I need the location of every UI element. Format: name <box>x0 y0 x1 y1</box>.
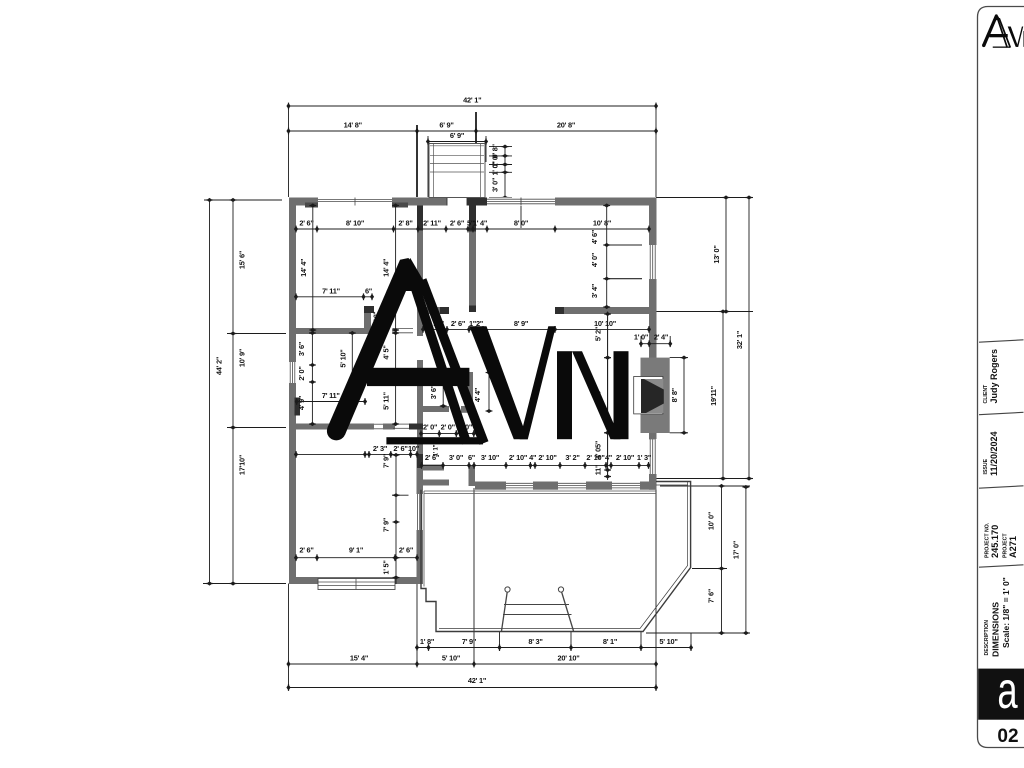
svg-text:20' 8": 20' 8" <box>557 121 576 130</box>
svg-text:6": 6" <box>365 286 373 295</box>
svg-text:9' 1": 9' 1" <box>349 546 364 555</box>
svg-text:Judy Rogers: Judy Rogers <box>989 349 999 404</box>
svg-text:1' 3": 1' 3" <box>637 453 652 462</box>
svg-text:7' 6": 7' 6" <box>707 588 716 603</box>
svg-text:5' 10": 5' 10" <box>442 654 461 663</box>
svg-text:2' 10": 2' 10" <box>616 453 635 462</box>
svg-text:3' 6": 3' 6" <box>297 341 306 356</box>
svg-text:42' 1": 42' 1" <box>468 676 487 685</box>
svg-text:6' 9": 6' 9" <box>439 121 454 130</box>
svg-text:15' 4": 15' 4" <box>350 654 369 663</box>
svg-text:02: 02 <box>997 726 1018 747</box>
svg-text:3' 4": 3' 4" <box>590 283 599 298</box>
svg-text:7' 11": 7' 11" <box>322 286 340 295</box>
svg-text:A271: A271 <box>1008 536 1018 558</box>
svg-text:DESCRIPTION: DESCRIPTION <box>984 620 990 656</box>
svg-text:14' 4": 14' 4" <box>382 258 391 277</box>
svg-text:3' 0": 3' 0" <box>449 453 464 462</box>
svg-text:5' 10": 5' 10" <box>659 637 678 646</box>
svg-text:3' 6": 3' 6" <box>429 384 438 399</box>
svg-text:7' 9": 7' 9" <box>462 637 477 646</box>
svg-text:1' 4": 1' 4" <box>473 219 488 228</box>
svg-text:4": 4" <box>605 453 613 462</box>
svg-text:10' 0": 10' 0" <box>707 511 716 530</box>
svg-text:15' 6": 15' 6" <box>238 250 247 269</box>
svg-text:2' 6": 2' 6" <box>450 219 465 228</box>
svg-text:2' 4": 2' 4" <box>654 333 669 342</box>
svg-text:14' 8": 14' 8" <box>344 121 363 130</box>
svg-text:8' 0": 8' 0" <box>514 219 529 228</box>
svg-text:4' 6": 4' 6" <box>590 229 599 244</box>
svg-text:2' 8": 2' 8" <box>398 219 413 228</box>
svg-text:7' 11": 7' 11" <box>322 391 340 400</box>
svg-text:2' 6": 2' 6" <box>299 546 314 555</box>
svg-text:10": 10" <box>408 444 420 453</box>
svg-text:3' 0": 3' 0" <box>491 177 500 192</box>
svg-text:5' 11": 5' 11" <box>382 391 391 409</box>
svg-text:1' 8": 1' 8" <box>420 637 435 646</box>
svg-text:2' 6": 2' 6" <box>299 219 314 228</box>
svg-text:2' 10": 2' 10" <box>509 453 528 462</box>
svg-text:8' 1": 8' 1" <box>603 637 618 646</box>
svg-text:2' 6": 2' 6" <box>393 444 408 453</box>
svg-text:10' 9": 10' 9" <box>238 348 247 367</box>
svg-text:32' 1": 32' 1" <box>735 330 744 349</box>
svg-text:4": 4" <box>529 453 537 462</box>
svg-text:4' 4": 4' 4" <box>473 387 482 402</box>
svg-text:a: a <box>997 660 1017 719</box>
svg-text:2' 0": 2' 0" <box>423 423 438 432</box>
svg-text:2' 0": 2' 0" <box>441 423 456 432</box>
svg-text:2' 6": 2' 6" <box>399 546 414 555</box>
svg-text:14' 4": 14' 4" <box>299 258 308 277</box>
svg-text:8' 9": 8' 9" <box>514 319 529 328</box>
svg-text:2' 11": 2' 11" <box>423 219 441 228</box>
svg-text:3' 10": 3' 10" <box>481 453 500 462</box>
svg-text:1' 5": 1' 5" <box>382 560 391 575</box>
svg-text:10' 8": 10' 8" <box>593 219 612 228</box>
svg-text:11/20/2024: 11/20/2024 <box>989 431 999 476</box>
svg-text:5' 2": 5' 2" <box>594 326 603 341</box>
svg-text:17' 0": 17' 0" <box>732 540 741 559</box>
svg-text:4' 5": 4' 5" <box>382 345 391 360</box>
svg-text:DIMENSIONS: DIMENSIONS <box>991 602 1001 657</box>
svg-text:2' 3": 2' 3" <box>373 444 388 453</box>
svg-text:17'10": 17'10" <box>238 454 247 475</box>
svg-text:6": 6" <box>468 453 476 462</box>
svg-text:2' 10": 2' 10" <box>538 453 557 462</box>
svg-text:13' 0": 13' 0" <box>712 245 721 264</box>
svg-text:4' 0": 4' 0" <box>590 252 599 267</box>
svg-text:Scale: 1/8" = 1' 0": Scale: 1/8" = 1' 0" <box>1001 577 1011 648</box>
svg-text:20' 10": 20' 10" <box>557 654 580 663</box>
svg-text:7' 9": 7' 9" <box>382 517 391 532</box>
svg-text:8' 8": 8' 8" <box>670 387 679 402</box>
svg-text:44' 2": 44' 2" <box>215 356 224 375</box>
svg-text:1' 0": 1' 0" <box>491 161 500 176</box>
svg-text:8' 10": 8' 10" <box>346 219 365 228</box>
svg-text:245.170: 245.170 <box>990 525 1000 558</box>
svg-text:3' 2": 3' 2" <box>565 453 580 462</box>
svg-text:10' 10": 10' 10" <box>594 319 617 328</box>
svg-text:5' 10": 5' 10" <box>338 349 347 368</box>
svg-text:2' 10": 2' 10" <box>586 453 605 462</box>
svg-text:42' 1": 42' 1" <box>463 96 482 105</box>
svg-text:8' 3": 8' 3" <box>528 637 543 646</box>
svg-text:2' 6": 2' 6" <box>451 319 466 328</box>
svg-text:1' 1": 1' 1" <box>434 444 440 456</box>
svg-text:19'11": 19'11" <box>709 385 718 406</box>
svg-text:6' 9": 6' 9" <box>450 131 465 140</box>
svg-text:2' 0": 2' 0" <box>297 366 306 381</box>
svg-text:4' 9": 4' 9" <box>297 395 306 410</box>
svg-text:7' 9": 7' 9" <box>382 453 391 468</box>
